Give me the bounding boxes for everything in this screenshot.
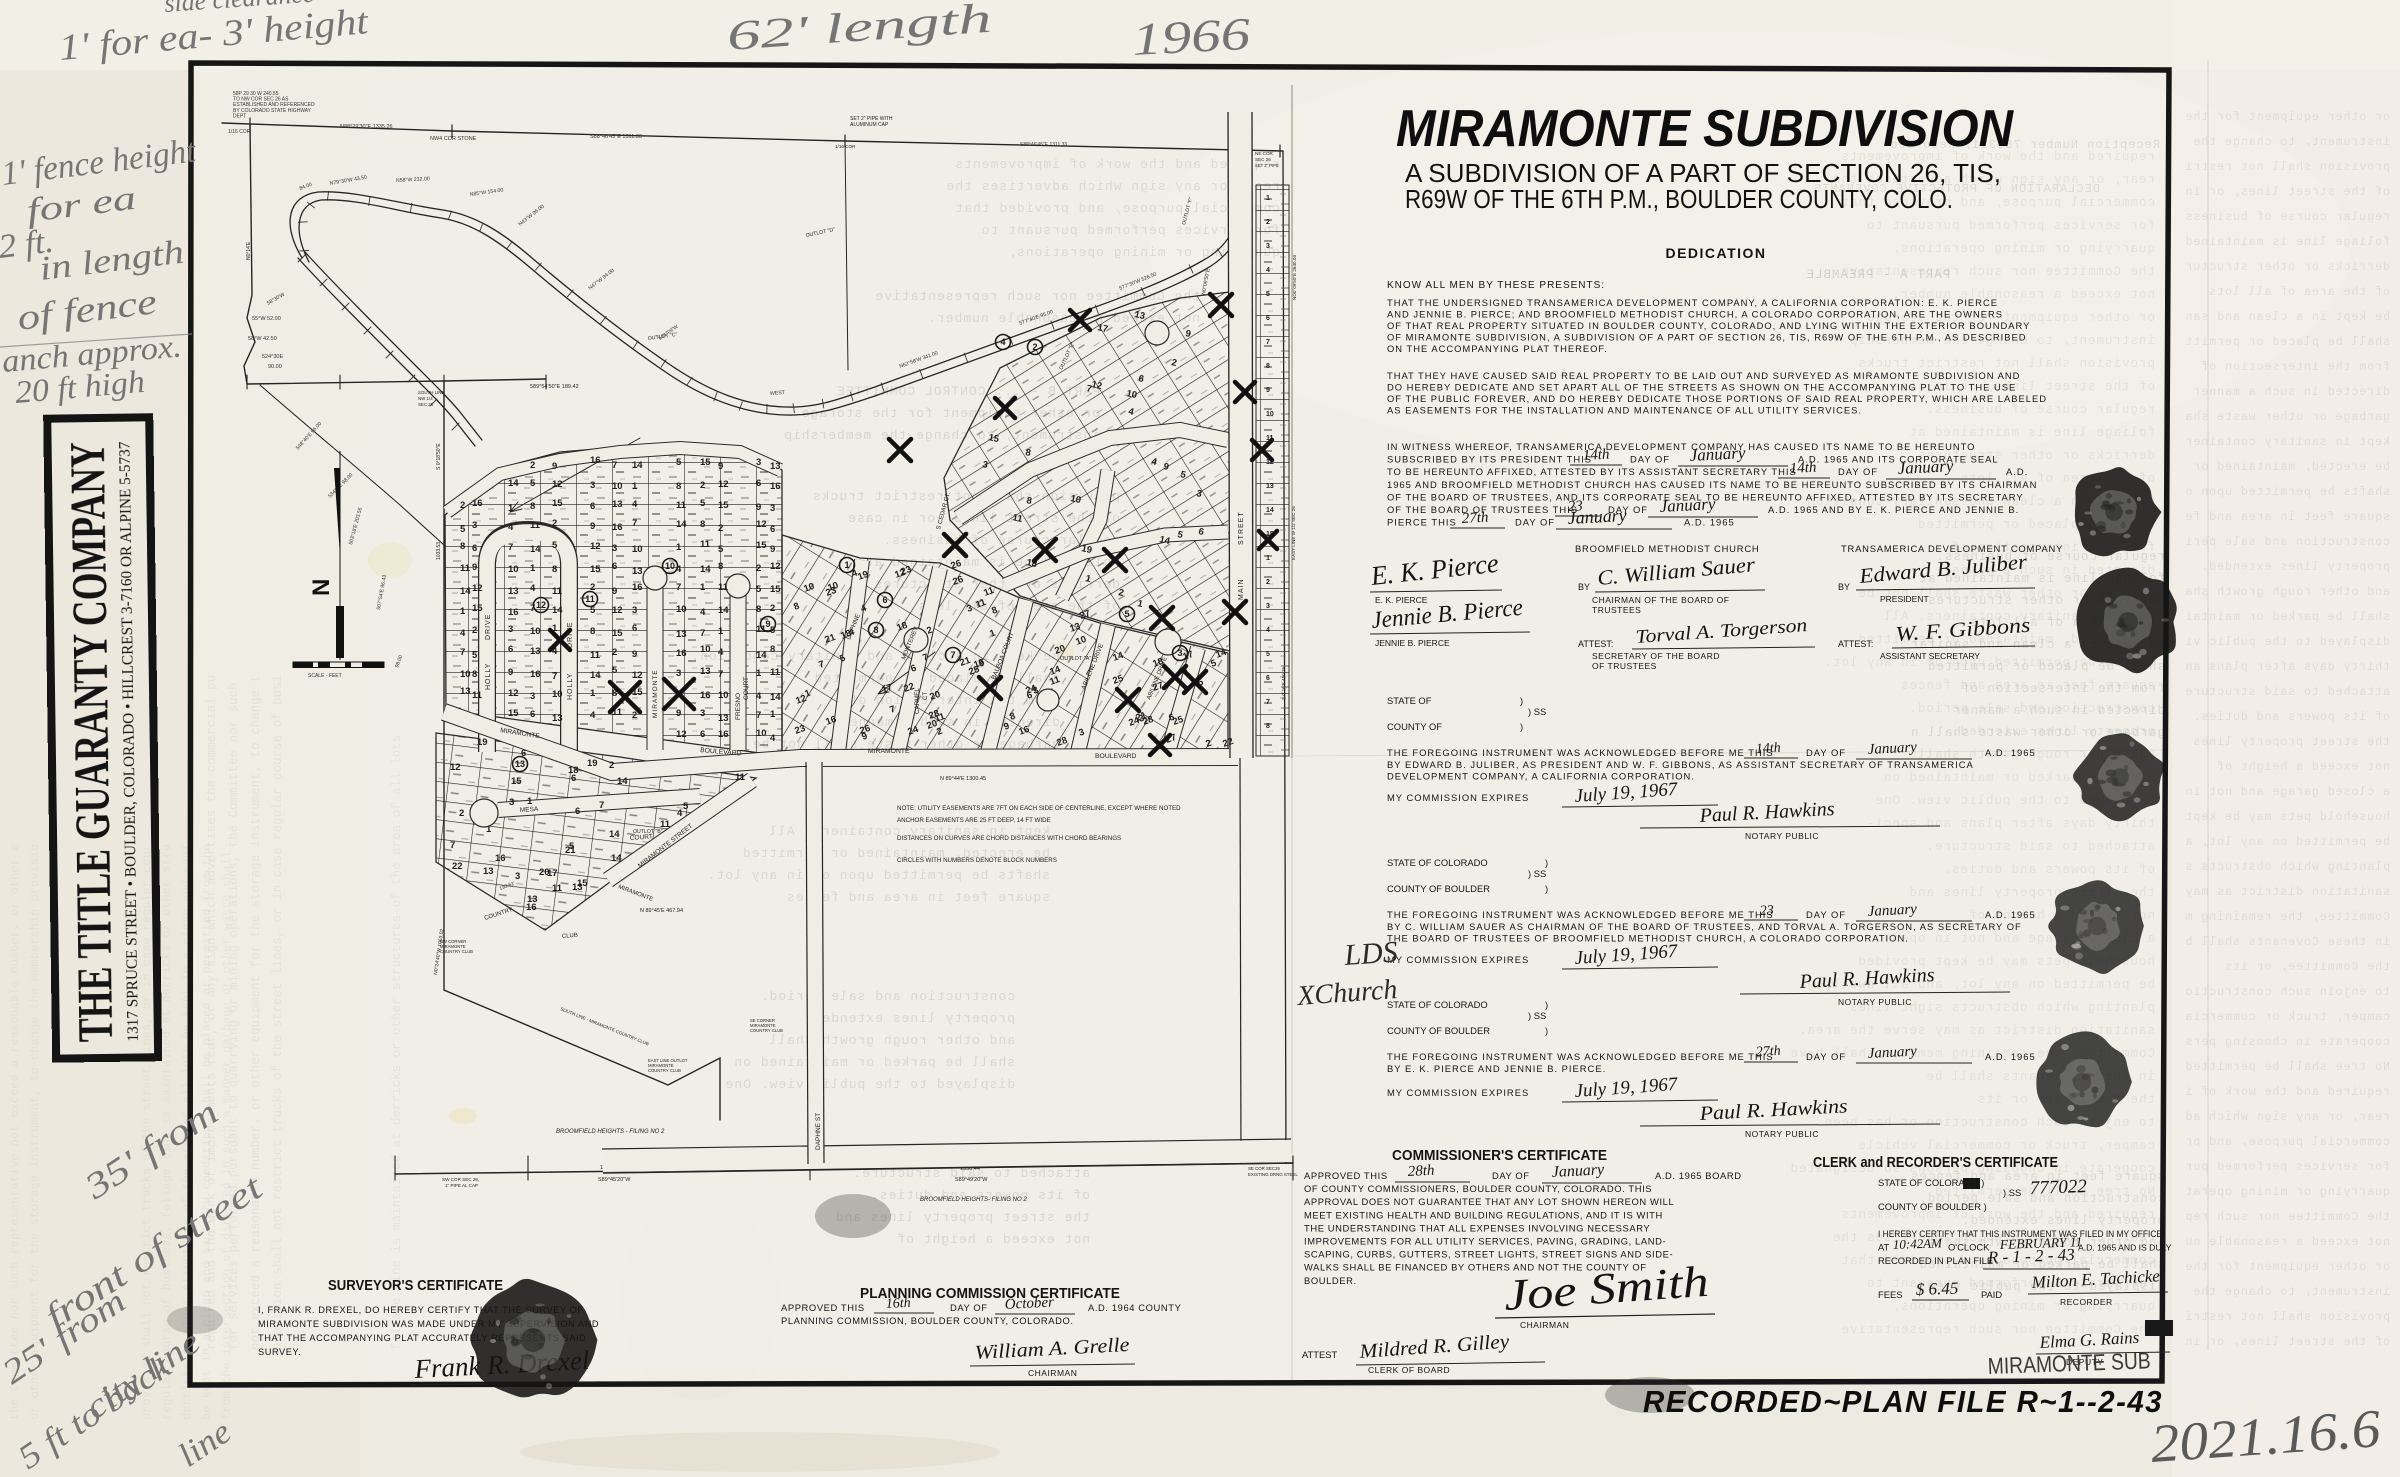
svg-text:N 89°44'E 1300.45: N 89°44'E 1300.45	[940, 776, 986, 782]
svg-text:5: 5	[612, 665, 618, 676]
svg-text:10: 10	[612, 481, 623, 492]
svg-text:3: 3	[676, 668, 681, 679]
svg-text:2: 2	[609, 760, 614, 771]
svg-text:13: 13	[460, 686, 471, 697]
svg-text:10: 10	[530, 626, 541, 637]
svg-text:5: 5	[1266, 291, 1270, 298]
svg-text:DAY OF: DAY OF	[1806, 1051, 1846, 1062]
svg-text:3: 3	[508, 624, 513, 635]
svg-text:7: 7	[612, 460, 617, 471]
svg-text:R - 1 - 2 - 43: R - 1 - 2 - 43	[1986, 1245, 2074, 1267]
svg-text:): )	[1545, 883, 1548, 894]
svg-text:5: 5	[552, 540, 558, 551]
svg-text:8: 8	[472, 669, 477, 680]
svg-text:EXISTING DRNG STEEL: EXISTING DRNG STEEL	[1248, 1172, 1298, 1177]
svg-text:THAT THE UNDERSIGNED TRANSAMER: THAT THE UNDERSIGNED TRANSAMERICA DEVELO…	[1387, 297, 1998, 308]
svg-text:58°W 42.50: 58°W 42.50	[248, 336, 277, 342]
svg-text:2: 2	[472, 625, 477, 636]
svg-text:sanitation district as may: sanitation district as may	[2185, 886, 2390, 899]
svg-text:21: 21	[565, 845, 576, 856]
svg-text:14: 14	[590, 670, 601, 681]
svg-text:6: 6	[700, 729, 705, 740]
svg-text:regular course of business: regular course of business	[2185, 211, 2390, 224]
svg-text:NOTARY PUBLIC: NOTARY PUBLIC	[1838, 997, 1912, 1007]
svg-text:12: 12	[536, 600, 546, 610]
svg-text:COMMISSIONER'S CERTIFICATE: COMMISSIONER'S CERTIFICATE	[1392, 1148, 1607, 1164]
svg-text:$ 6.45: $ 6.45	[1915, 1279, 1958, 1299]
svg-text:8: 8	[460, 541, 465, 552]
svg-text:10: 10	[1266, 411, 1274, 418]
svg-text:9: 9	[756, 502, 761, 513]
svg-text:SW COR SEC 26,: SW COR SEC 26,	[442, 1177, 479, 1182]
svg-text:3: 3	[612, 543, 617, 554]
svg-text:11: 11	[676, 500, 687, 511]
svg-text:SURVEY.: SURVEY.	[258, 1347, 301, 1357]
svg-text:or other equipment for the: or other equipment for the	[2185, 111, 2390, 124]
svg-text:11: 11	[700, 539, 711, 550]
svg-text:1033.53: 1033.53	[436, 542, 442, 560]
svg-text:7: 7	[700, 628, 705, 639]
svg-text:2: 2	[530, 460, 535, 471]
svg-text:7: 7	[450, 840, 455, 851]
svg-text:2: 2	[756, 563, 761, 574]
svg-text:4: 4	[700, 607, 706, 618]
svg-text:6: 6	[508, 644, 513, 655]
svg-text:HOLLY: HOLLY	[567, 673, 574, 700]
svg-text:9: 9	[508, 667, 513, 678]
svg-text:12: 12	[552, 479, 563, 490]
svg-text:27th: 27th	[1755, 1044, 1781, 1060]
svg-text:LDS: LDS	[1342, 935, 1399, 972]
svg-text:10: 10	[552, 689, 563, 700]
svg-text:12: 12	[450, 762, 461, 773]
svg-text:8: 8	[770, 644, 775, 655]
svg-text:16: 16	[508, 607, 519, 618]
svg-text:IMPROVEMENTS FOR ALL UTILITY S: IMPROVEMENTS FOR ALL UTILITY SERVICES, P…	[1304, 1236, 1666, 1247]
svg-text:16: 16	[526, 902, 537, 913]
svg-text:19: 19	[587, 758, 598, 769]
svg-text:): )	[1520, 695, 1523, 706]
svg-text:18: 18	[568, 765, 579, 776]
svg-text:1: 1	[718, 626, 724, 637]
svg-text:STATE OF COLORADO: STATE OF COLORADO	[1387, 857, 1488, 868]
svg-text:be kept in a clean and san: be kept in a clean and san	[2185, 311, 2390, 324]
svg-text:14: 14	[609, 829, 620, 840]
svg-text:MY COMMISSION EXPIRES: MY COMMISSION EXPIRES	[1387, 1087, 1529, 1098]
svg-text:12: 12	[718, 479, 729, 490]
svg-text:CIRCLES WITH NUMBERS DENOTE BL: CIRCLES WITH NUMBERS DENOTE BLOCK NUMBER…	[897, 857, 1057, 864]
svg-text:BY: BY	[1578, 582, 1590, 592]
svg-text:FRESNO: FRESNO	[735, 693, 742, 720]
svg-text:13: 13	[632, 566, 643, 577]
svg-text:A.D. 1965 AND BY E. K. PIERCE: A.D. 1965 AND BY E. K. PIERCE AND JENNIE…	[1768, 504, 2019, 515]
svg-text:7: 7	[460, 647, 465, 658]
svg-text:OF THE PUBLIC FOREVER, AND DO: OF THE PUBLIC FOREVER, AND DO HEREBY DED…	[1387, 393, 2047, 404]
svg-text:15: 15	[511, 776, 522, 787]
svg-text:DAY OF: DAY OF	[1806, 909, 1846, 920]
svg-text:October: October	[1004, 1294, 1054, 1313]
svg-text:3: 3	[1177, 648, 1182, 658]
svg-text:15: 15	[612, 628, 623, 639]
svg-text:12: 12	[632, 670, 643, 681]
svg-text:provision shall not restri: provision shall not restri	[2185, 1311, 2390, 1324]
svg-text:S89°45'20"W: S89°45'20"W	[598, 1177, 631, 1183]
svg-text:6: 6	[756, 478, 761, 489]
svg-text:DEDICATION: DEDICATION	[1665, 245, 1766, 261]
svg-text:13: 13	[718, 713, 729, 724]
svg-text:shafts be permitted upon or in: shafts be permitted upon or in any lot.	[707, 868, 1050, 883]
svg-text:BOULEVARD: BOULEVARD	[1095, 753, 1137, 760]
svg-text:10: 10	[756, 728, 767, 739]
svg-text:2: 2	[1266, 219, 1270, 226]
svg-text:) SS: ) SS	[1528, 868, 1546, 879]
svg-text:NE COR: NE COR	[1255, 151, 1274, 156]
svg-text:ATTEST:: ATTEST:	[1578, 639, 1613, 649]
svg-text:8: 8	[552, 564, 557, 575]
svg-text:property lines extended.: property lines extended.	[2200, 561, 2390, 574]
svg-text:11: 11	[660, 819, 671, 830]
svg-text:14: 14	[676, 519, 687, 530]
svg-text:N88°29'30"E 1335.26: N88°29'30"E 1335.26	[340, 124, 393, 130]
svg-text:5: 5	[683, 801, 689, 812]
svg-text:12: 12	[770, 561, 781, 572]
svg-text:provision shall not restrict t: provision shall not restrict trucks	[1857, 357, 2155, 371]
svg-text:kept in sanitary container: kept in sanitary container	[2185, 436, 2390, 449]
svg-text:14th: 14th	[1582, 447, 1609, 464]
svg-text:January: January	[1659, 494, 1716, 516]
svg-text:12: 12	[676, 729, 687, 740]
svg-text:camper, truck or commercial ve: camper, truck or commercial vehicle	[1857, 1139, 2155, 1153]
svg-text:WEST: WEST	[770, 390, 786, 397]
svg-text:TRANSAMERICA DEVELOPMENT COMPA: TRANSAMERICA DEVELOPMENT COMPANY	[1841, 543, 2063, 554]
svg-text:BROOMFIELD HEIGHTS- FILING NO: BROOMFIELD HEIGHTS- FILING NO 2	[920, 1197, 1027, 1203]
svg-text:28th: 28th	[1407, 1163, 1434, 1180]
svg-text:A.D. 1965: A.D. 1965	[1985, 1051, 2036, 1062]
svg-text:2: 2	[718, 523, 723, 534]
svg-text:7: 7	[950, 650, 955, 660]
svg-text:13: 13	[508, 586, 519, 597]
svg-text:not exceed a reasonable nu: not exceed a reasonable nu	[2185, 1236, 2390, 1249]
svg-text:1: 1	[632, 481, 638, 492]
svg-text:1: 1	[1266, 195, 1270, 202]
svg-text:7: 7	[552, 671, 557, 682]
svg-text:COUNTY OF BOULDER: COUNTY OF BOULDER	[1387, 883, 1490, 894]
svg-text:January: January	[1567, 505, 1627, 528]
svg-text:13: 13	[1266, 483, 1274, 490]
svg-text:3: 3	[632, 605, 637, 616]
svg-text:5: 5	[718, 544, 724, 555]
svg-text:MIRAMONTE SUBDIVISION: MIRAMONTE SUBDIVISION	[1396, 100, 2014, 158]
svg-text:) SS: ) SS	[2003, 1187, 2021, 1198]
svg-text:7: 7	[508, 542, 513, 553]
svg-text:13: 13	[530, 646, 541, 657]
svg-text:SCALE - FEET: SCALE - FEET	[308, 673, 342, 679]
svg-text:RECORDED~PLAN FILE R~1--2-43: RECORDED~PLAN FILE R~1--2-43	[1643, 1384, 2163, 1419]
svg-text:January: January	[1551, 1161, 1605, 1181]
svg-text:R69W OF THE 6TH P.M., BOULDER: R69W OF THE 6TH P.M., BOULDER COUNTY, CO…	[1405, 186, 1953, 214]
svg-text:CARMEL: CARMEL	[914, 688, 921, 714]
svg-text:3: 3	[700, 708, 705, 719]
svg-text:) SS: ) SS	[1528, 1010, 1546, 1021]
svg-text:13: 13	[612, 499, 623, 510]
svg-text:13: 13	[552, 713, 563, 724]
svg-text:1: 1	[590, 688, 596, 699]
svg-text:the Committee nor such represe: the Committee nor such representative	[874, 289, 1200, 304]
svg-text:11: 11	[530, 520, 541, 531]
svg-text:A.D. 1965: A.D. 1965	[1985, 747, 2036, 758]
svg-text:EAST LINE W 1/2 SEC 26: EAST LINE W 1/2 SEC 26	[1291, 506, 1296, 560]
svg-text:APPROVED THIS: APPROVED THIS	[781, 1302, 865, 1313]
svg-text:shall be parked or maintained: shall be parked or maintained on	[733, 1055, 1015, 1070]
svg-text:1: 1	[508, 503, 514, 514]
svg-text:attached to said structure: attached to said structure	[2185, 686, 2390, 699]
svg-text:11: 11	[552, 883, 563, 894]
svg-text:15: 15	[508, 708, 519, 719]
svg-text:2: 2	[700, 480, 705, 491]
svg-text:STATE OF COLORADO: STATE OF COLORADO	[1387, 999, 1488, 1010]
svg-text:1966: 1966	[1131, 8, 1252, 65]
svg-text:4: 4	[590, 710, 596, 721]
svg-text:DAY OF: DAY OF	[1838, 466, 1878, 477]
svg-text:the Committee, or its: the Committee, or its	[2224, 961, 2390, 974]
svg-text:1" PIPE AL CAP: 1" PIPE AL CAP	[445, 1183, 478, 1188]
svg-text:APPROVED THIS: APPROVED THIS	[1304, 1170, 1388, 1181]
svg-text:January: January	[1897, 456, 1954, 478]
svg-text:4: 4	[530, 583, 536, 594]
svg-text:construction and sale period.: construction and sale period.	[760, 989, 1015, 1004]
svg-text:6: 6	[530, 709, 535, 720]
svg-text:16: 16	[495, 853, 506, 864]
svg-text:12: 12	[612, 605, 623, 616]
svg-text:524°30E: 524°30E	[262, 354, 283, 360]
svg-text:NOTE: UTILITY EASEMENTS ARE 7F: NOTE: UTILITY EASEMENTS ARE 7FT ON EACH …	[897, 805, 1181, 812]
svg-text:RECORDER: RECORDER	[2060, 1297, 2113, 1307]
svg-text:SCAPING, CURBS, GUTTERS, STREE: SCAPING, CURBS, GUTTERS, STREET LIGHTS, …	[1304, 1249, 1673, 1260]
svg-text:55°W 52.00: 55°W 52.00	[252, 316, 281, 322]
svg-text:S88°46'45"E 1311.33: S88°46'45"E 1311.33	[1020, 142, 1067, 148]
svg-text:5: 5	[676, 457, 682, 468]
svg-text:HOLLY: HOLLY	[485, 663, 492, 690]
svg-text:MY COMMISSION EXPIRES: MY COMMISSION EXPIRES	[1387, 954, 1529, 965]
svg-text:6: 6	[590, 501, 595, 512]
svg-text:PAID: PAID	[1981, 1289, 2002, 1300]
svg-text:OF COUNTY COMMISSIONERS, BOULD: OF COUNTY COMMISSIONERS, BOULDER COUNTY,…	[1304, 1183, 1652, 1194]
svg-text:DAPHNE ST: DAPHNE ST	[815, 1113, 822, 1150]
svg-text:KNOW ALL MEN BY THESE PRESENTS: KNOW ALL MEN BY THESE PRESENTS:	[1387, 280, 1605, 291]
svg-text:2: 2	[459, 808, 464, 819]
svg-text:DRIVE: DRIVE	[567, 622, 574, 648]
svg-text:A.D. 1964 COUNTY: A.D. 1964 COUNTY	[1088, 1302, 1182, 1313]
svg-text:January: January	[1867, 901, 1917, 920]
svg-text:from the intersection of: from the intersection of	[2200, 361, 2390, 374]
svg-text:ATTEST: ATTEST	[1302, 1349, 1338, 1360]
svg-text:9: 9	[718, 461, 723, 472]
svg-text:3: 3	[509, 797, 514, 808]
svg-text:1: 1	[770, 709, 776, 720]
svg-text:be permitted on any lot, a: be permitted on any lot, a	[2185, 836, 2390, 849]
svg-text:16: 16	[676, 648, 687, 659]
svg-text:DAY OF: DAY OF	[1806, 747, 1846, 758]
svg-text:A.D. 1965: A.D. 1965	[1684, 517, 1735, 528]
svg-text:A SUBDIVISION OF A PART OF SEC: A SUBDIVISION OF A PART OF SECTION 26, T…	[1405, 160, 2001, 188]
svg-text:1: 1	[530, 563, 536, 574]
svg-text:3: 3	[590, 480, 595, 491]
svg-text:for services performed pursuan: for services performed pursuant to	[1866, 219, 2155, 233]
svg-text:14th: 14th	[1789, 460, 1816, 477]
svg-text:THE UNDERSTANDING THAT ALL EXP: THE UNDERSTANDING THAT ALL EXPENSES INVO…	[1304, 1222, 1650, 1233]
svg-text:8: 8	[718, 561, 723, 572]
svg-text:garbage or other waste sha: garbage or other waste sha	[2185, 411, 2390, 424]
svg-text:15: 15	[700, 457, 711, 468]
svg-text:11: 11	[590, 650, 601, 661]
svg-text:NW4 COR STONE: NW4 COR STONE	[430, 136, 477, 142]
svg-text:STREET: STREET	[1238, 511, 1245, 545]
svg-text:14: 14	[508, 478, 519, 489]
svg-text:6: 6	[770, 524, 775, 535]
svg-text:8: 8	[700, 519, 705, 530]
svg-text:3: 3	[1266, 243, 1270, 250]
svg-text:AT: AT	[1878, 1242, 1890, 1253]
svg-text:15: 15	[756, 540, 767, 551]
svg-text:): )	[1545, 857, 1548, 868]
svg-text:777022: 777022	[2029, 1176, 2087, 1199]
svg-text:THE FOREGOING INSTRUMENT WAS A: THE FOREGOING INSTRUMENT WAS ACKNOWLEDGE…	[1387, 909, 1774, 920]
svg-text:January: January	[1867, 1043, 1917, 1062]
svg-text:AND JENNIE B. PIERCE; AND BROO: AND JENNIE B. PIERCE; AND BROOMFIELD MET…	[1387, 309, 2003, 320]
svg-text:14: 14	[756, 650, 767, 661]
svg-text:14: 14	[1266, 507, 1274, 514]
svg-text:): )	[1545, 1025, 1548, 1036]
svg-text:DAY OF: DAY OF	[1630, 454, 1670, 465]
svg-text:cooperate in choosing pers: cooperate in choosing pers	[2185, 1036, 2390, 1049]
svg-text:STATE OF: STATE OF	[1387, 695, 1432, 706]
svg-text:ATTEST:: ATTEST:	[1838, 639, 1873, 649]
svg-text:1: 1	[1266, 555, 1270, 562]
svg-text:O'CLOCK: O'CLOCK	[1948, 1242, 1990, 1253]
svg-text:9: 9	[612, 586, 617, 597]
svg-text:THE FOREGOING INSTRUMENT WAS A: THE FOREGOING INSTRUMENT WAS ACKNOWLEDGE…	[1387, 747, 1774, 758]
svg-text:BOULDER.: BOULDER.	[1304, 1275, 1357, 1286]
svg-text:CHAIRMAN: CHAIRMAN	[1028, 1368, 1077, 1378]
svg-text:6: 6	[612, 561, 617, 572]
svg-text:13: 13	[676, 629, 687, 640]
svg-text:5: 5	[460, 524, 466, 535]
svg-text:10:42AM: 10:42AM	[1893, 1235, 1944, 1252]
svg-text:sanitation district as may ser: sanitation district as may serve the are…	[1798, 1024, 2155, 1038]
svg-text:10: 10	[632, 544, 643, 555]
svg-text:9: 9	[1266, 387, 1270, 394]
svg-text:COUNTY OF: COUNTY OF	[1387, 721, 1442, 732]
svg-text:4: 4	[1266, 627, 1270, 634]
svg-text:5: 5	[1266, 651, 1270, 658]
svg-text:not exceed a reasonable number: not exceed a reasonable number. or other…	[249, 675, 263, 1350]
svg-text:11: 11	[552, 586, 563, 597]
svg-text:displayed to the public view.: displayed to the public view. One	[725, 1077, 1015, 1092]
svg-text:16: 16	[590, 455, 601, 466]
svg-text:1/16 COR: 1/16 COR	[835, 144, 856, 149]
svg-text:14: 14	[552, 605, 563, 616]
svg-text:camper, truck or commercia: camper, truck or commercia	[2185, 1011, 2390, 1024]
svg-text:property lines extended.: property lines extended.	[1961, 1214, 2165, 1228]
svg-text:6: 6	[472, 543, 477, 554]
svg-text:THE FOREGOING INSTRUMENT WAS A: THE FOREGOING INSTRUMENT WAS ACKNOWLEDGE…	[1387, 1051, 1774, 1062]
svg-text:directed in such a manner: directed in such a manner	[2192, 386, 2390, 399]
svg-text:1: 1	[676, 542, 682, 553]
svg-text:MAIN: MAIN	[1238, 579, 1245, 601]
svg-text:7: 7	[1266, 339, 1270, 346]
svg-text:11: 11	[460, 563, 471, 574]
svg-text:9: 9	[765, 619, 770, 629]
svg-text:instrument, to change the: instrument, to change the	[2192, 1286, 2390, 1299]
svg-text:NOTARY PUBLIC: NOTARY PUBLIC	[1745, 831, 1819, 841]
svg-text:square feet in area and fe: square feet in area and fe	[2185, 511, 2390, 524]
svg-text:): )	[1520, 721, 1523, 732]
svg-text:15: 15	[718, 500, 729, 511]
svg-text:4: 4	[460, 628, 466, 639]
svg-text:COUNTRY CLUB: COUNTRY CLUB	[750, 1028, 783, 1033]
svg-text:foliage line is maintained at: foliage line is maintained at	[1908, 426, 2155, 440]
svg-text:DEPT: DEPT	[233, 113, 246, 119]
svg-text:3: 3	[770, 503, 775, 514]
svg-text:planting which obstructs s: planting which obstructs s	[2185, 861, 2390, 874]
svg-text:8: 8	[1266, 363, 1270, 370]
svg-text:shafts be permitted upon o: shafts be permitted upon o	[2185, 486, 2390, 499]
svg-text:9: 9	[590, 521, 595, 532]
svg-text:16: 16	[530, 669, 541, 680]
svg-text:NO0°09'50"E 2640.03: NO0°09'50"E 2640.03	[1292, 255, 1297, 300]
svg-text:8: 8	[1266, 723, 1270, 730]
svg-text:2: 2	[460, 500, 465, 511]
svg-text:CT: CT	[922, 692, 929, 700]
svg-text:9: 9	[676, 708, 681, 719]
svg-text:COUNTY OF BOULDER ): COUNTY OF BOULDER )	[1878, 1201, 1987, 1212]
svg-text:N0°14'E: N0°14'E	[246, 241, 252, 260]
svg-text:14th: 14th	[1755, 741, 1781, 757]
svg-text:SEC 26: SEC 26	[1255, 157, 1271, 162]
svg-text:10: 10	[460, 669, 471, 680]
svg-text:2: 2	[612, 647, 617, 658]
svg-text:23: 23	[1759, 903, 1774, 919]
svg-text:13: 13	[700, 666, 711, 677]
svg-text:1: 1	[460, 606, 466, 617]
svg-text:2: 2	[1032, 342, 1037, 352]
svg-text:6: 6	[632, 623, 637, 634]
svg-text:5: 5	[1124, 609, 1129, 619]
svg-text:rear, or any sign which ad: rear, or any sign which ad	[2185, 1111, 2390, 1124]
svg-text:7: 7	[632, 518, 637, 529]
svg-text:1/16 COR: 1/16 COR	[228, 129, 251, 135]
svg-text:MIRAMONTE: MIRAMONTE	[868, 748, 910, 755]
svg-text:13: 13	[1133, 309, 1146, 322]
svg-text:ON THE ACCOMPANYING PLAT THERE: ON THE ACCOMPANYING PLAT THEREOF.	[1387, 343, 1608, 354]
svg-text:APPROVAL DOES NOT GUARANTEE TH: APPROVAL DOES NOT GUARANTEE THAT ANY LOT…	[1304, 1196, 1674, 1207]
svg-text:19: 19	[477, 737, 488, 748]
svg-text:OF MIRAMONTE SUBDIVISION, A SU: OF MIRAMONTE SUBDIVISION, A SUBDIVISION …	[1387, 332, 2027, 343]
svg-text:regular course of business.: regular course of business.	[1925, 403, 2155, 417]
svg-text:BROOMFIELD HEIGHTS - FILING: BROOMFIELD HEIGHTS - FILING NO 2	[556, 1129, 665, 1135]
svg-text:4: 4	[508, 522, 514, 533]
svg-text:9: 9	[632, 649, 637, 660]
svg-text:TO BE HEREUNTO AFFIXED, ATTEST: TO BE HEREUNTO AFFIXED, ATTESTED BY ITS …	[1387, 466, 1797, 477]
svg-text:attached to said structure.: attached to said structure.	[1925, 840, 2155, 854]
svg-text:from the intersection of: from the intersection of	[1961, 682, 2165, 696]
svg-text:9: 9	[552, 461, 557, 472]
svg-text:A.D. 1965 AND IS DULY: A.D. 1965 AND IS DULY	[2078, 1243, 2172, 1253]
svg-text:4: 4	[632, 499, 638, 510]
svg-text:the Committee nor such represe: the Committee nor such representative no…	[8, 844, 22, 1420]
svg-text:10: 10	[1069, 493, 1082, 506]
svg-text:CHAIRMAN: CHAIRMAN	[1520, 1320, 1569, 1330]
